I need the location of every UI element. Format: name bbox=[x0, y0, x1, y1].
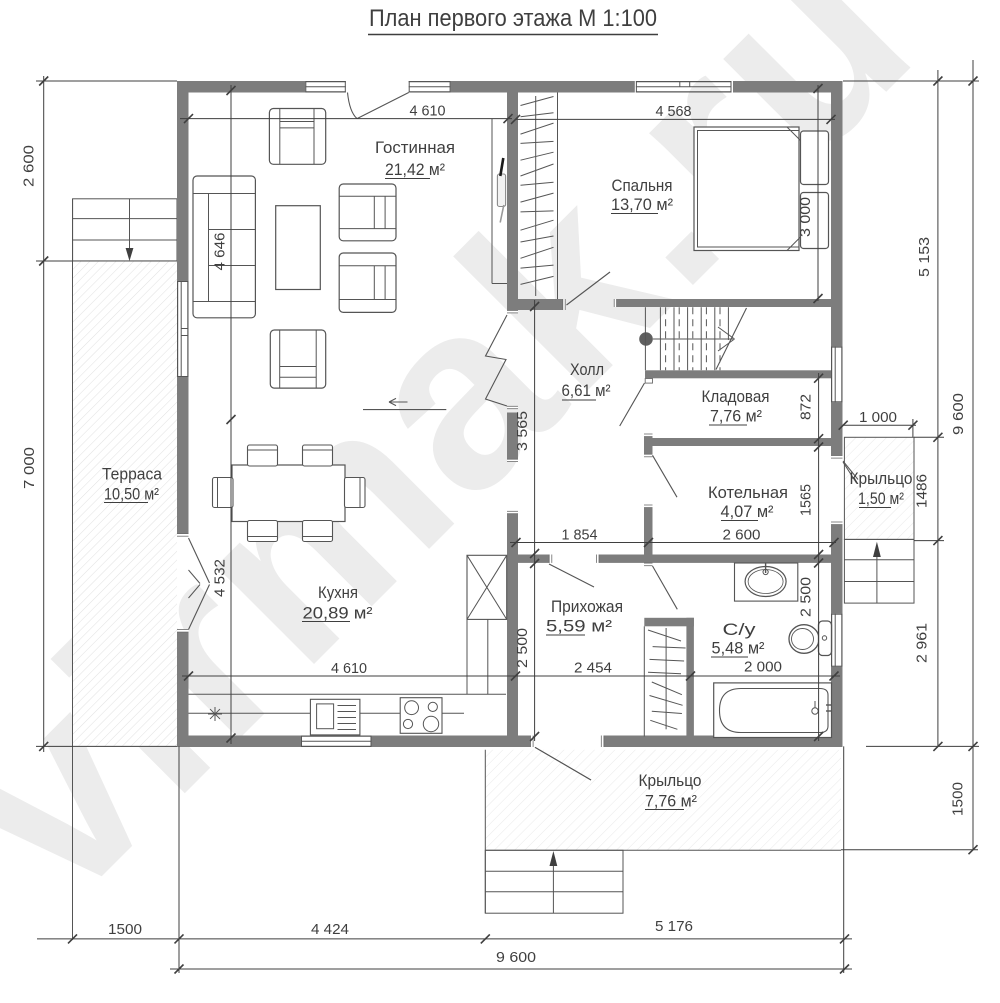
svg-text:13,70 м²: 13,70 м² bbox=[611, 196, 673, 214]
svg-text:2 500: 2 500 bbox=[515, 628, 531, 668]
svg-text:5 176: 5 176 bbox=[655, 919, 693, 935]
svg-text:2 600: 2 600 bbox=[22, 145, 38, 187]
svg-text:20,89 м²: 20,89 м² bbox=[303, 605, 374, 623]
svg-text:Спальня: Спальня bbox=[612, 177, 673, 195]
svg-text:2 000: 2 000 bbox=[744, 660, 782, 676]
svg-text:2 961: 2 961 bbox=[915, 623, 931, 663]
svg-text:Гостинная: Гостинная bbox=[375, 139, 455, 157]
svg-text:4,07 м²: 4,07 м² bbox=[721, 503, 774, 521]
svg-text:План первого этажа М 1:100: План первого этажа М 1:100 bbox=[369, 5, 657, 32]
svg-text:1565: 1565 bbox=[799, 484, 815, 516]
svg-text:9 600: 9 600 bbox=[496, 950, 536, 966]
svg-text:Прихожая: Прихожая bbox=[551, 598, 623, 616]
svg-text:Кухня: Кухня bbox=[318, 584, 358, 602]
svg-text:1486: 1486 bbox=[915, 474, 931, 508]
svg-text:Крыльцо: Крыльцо bbox=[639, 772, 702, 790]
svg-text:С/у: С/у bbox=[723, 621, 757, 639]
svg-text:1,50 м²: 1,50 м² bbox=[858, 490, 904, 508]
svg-text:Холл: Холл bbox=[570, 361, 604, 379]
svg-text:Крыльцо: Крыльцо bbox=[850, 470, 913, 488]
svg-text:4 610: 4 610 bbox=[410, 104, 446, 120]
svg-text:4 610: 4 610 bbox=[331, 661, 367, 677]
svg-text:7,76 м²: 7,76 м² bbox=[710, 408, 762, 426]
svg-text:5,59 м²: 5,59 м² bbox=[546, 618, 613, 636]
svg-text:4 568: 4 568 bbox=[656, 104, 692, 120]
svg-text:5,48 м²: 5,48 м² bbox=[712, 640, 765, 658]
svg-text:21,42 м²: 21,42 м² bbox=[385, 161, 445, 179]
svg-text:Кладовая: Кладовая bbox=[702, 388, 770, 406]
svg-text:1500: 1500 bbox=[108, 922, 142, 938]
svg-text:1 000: 1 000 bbox=[859, 410, 897, 426]
svg-text:Терраса: Терраса bbox=[102, 466, 163, 484]
svg-text:4 646: 4 646 bbox=[213, 233, 229, 271]
svg-text:1 854: 1 854 bbox=[562, 528, 598, 544]
svg-text:6,61 м²: 6,61 м² bbox=[562, 382, 611, 400]
svg-text:3 565: 3 565 bbox=[515, 411, 531, 451]
svg-text:9 600: 9 600 bbox=[951, 393, 967, 435]
svg-text:1500: 1500 bbox=[951, 782, 967, 816]
svg-text:4 424: 4 424 bbox=[311, 922, 349, 938]
svg-text:Котельная: Котельная bbox=[708, 484, 788, 502]
svg-text:7,76 м²: 7,76 м² bbox=[645, 793, 697, 811]
svg-text:2 454: 2 454 bbox=[574, 661, 612, 677]
svg-text:5 153: 5 153 bbox=[917, 237, 933, 277]
svg-text:2 600: 2 600 bbox=[723, 528, 761, 544]
svg-text:10,50 м²: 10,50 м² bbox=[104, 486, 159, 504]
svg-text:872: 872 bbox=[799, 394, 815, 420]
svg-text:7 000: 7 000 bbox=[22, 447, 38, 489]
svg-text:4 532: 4 532 bbox=[213, 559, 229, 597]
svg-text:2 500: 2 500 bbox=[799, 577, 815, 617]
svg-text:3 000: 3 000 bbox=[798, 197, 814, 237]
